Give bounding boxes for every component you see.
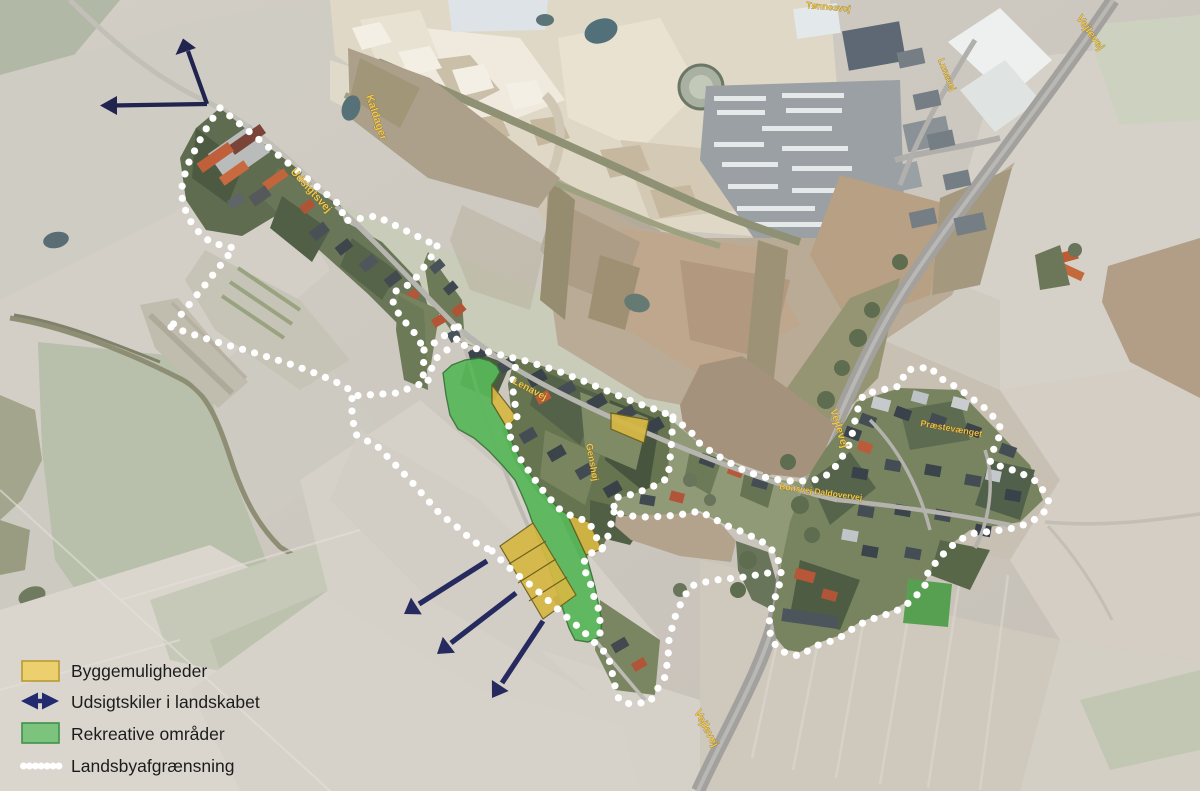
svg-text:Landsbyafgrænsning: Landsbyafgrænsning xyxy=(71,756,234,776)
svg-text:Udsigtskiler i landskabet: Udsigtskiler i landskabet xyxy=(71,692,260,712)
svg-text:Rekreative områder: Rekreative områder xyxy=(71,724,225,744)
svg-text:Byggemuligheder: Byggemuligheder xyxy=(71,661,207,681)
